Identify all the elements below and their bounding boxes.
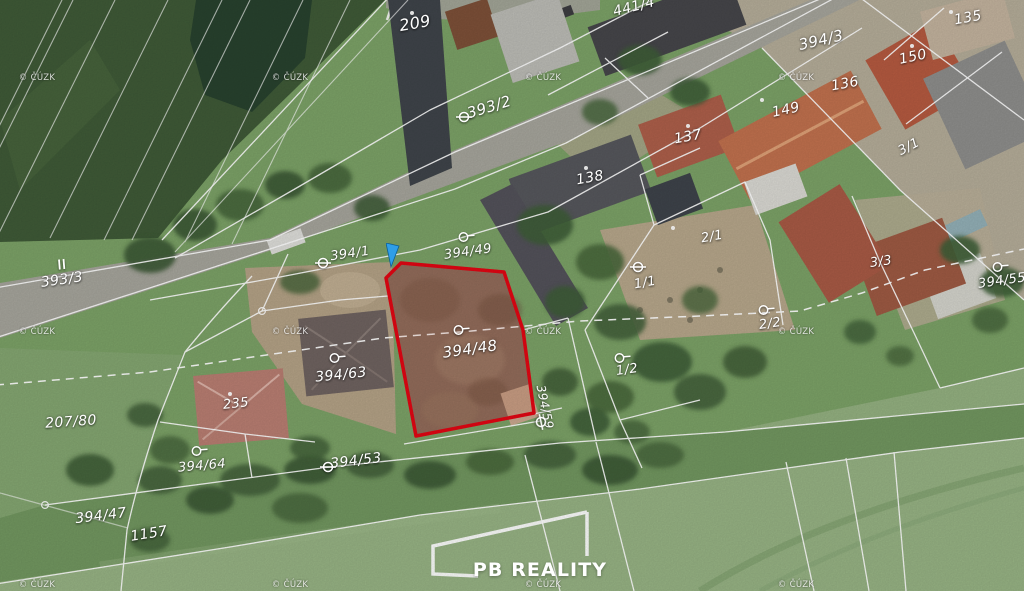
aerial-base	[0, 0, 1024, 591]
cadastral-map[interactable]: PB REALITY 209441/4393/2394/313515013614…	[0, 0, 1024, 591]
photo-grain	[0, 0, 1024, 591]
